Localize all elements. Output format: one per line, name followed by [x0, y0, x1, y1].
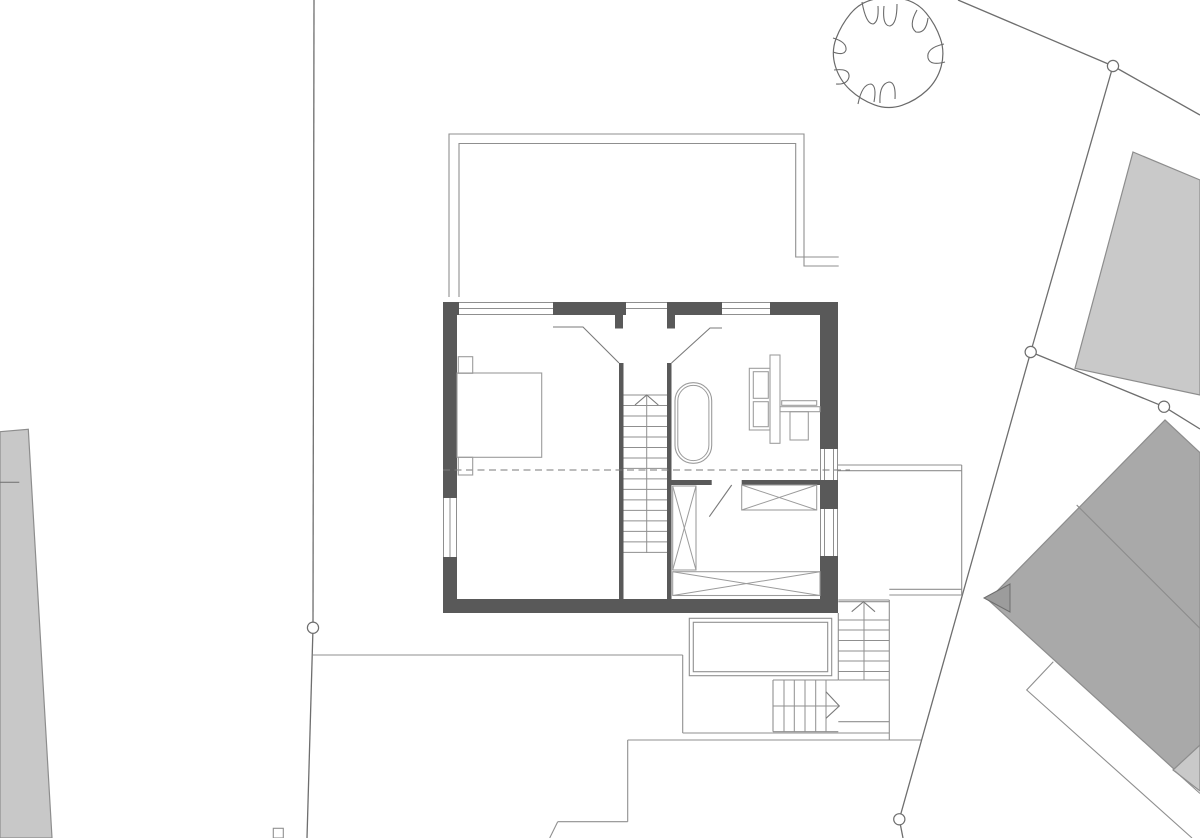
survey-point-circle	[1025, 346, 1036, 357]
property-boundary	[273, 0, 1200, 838]
survey-point-circle	[1158, 401, 1169, 412]
bathroom-door-leaf	[709, 485, 731, 517]
stairwell-funnel-lines	[553, 327, 722, 363]
site-plan-page	[0, 0, 1200, 838]
ground-lines	[313, 655, 922, 838]
bed	[457, 357, 542, 475]
southeast-building	[988, 420, 1200, 790]
interior-stair	[624, 395, 668, 553]
window-lines	[444, 303, 838, 558]
survey-point-circle	[1107, 60, 1118, 71]
west-building	[0, 429, 52, 838]
exterior-stair	[838, 600, 889, 740]
exterior-lower-flight	[773, 680, 839, 732]
floor-plan-drawing	[0, 0, 1200, 838]
annex-roof	[838, 465, 962, 595]
survey-point-circle	[307, 622, 318, 633]
northeast-building	[1075, 152, 1200, 395]
balcony-outline	[689, 618, 831, 675]
wardrobes	[673, 485, 820, 596]
neighbor-buildings	[0, 152, 1200, 838]
washstand-desk	[749, 355, 820, 443]
survey-point-circle	[894, 814, 905, 825]
bathtub	[675, 383, 712, 464]
tree-canopy	[833, 0, 945, 108]
terrace-outline	[449, 134, 839, 297]
